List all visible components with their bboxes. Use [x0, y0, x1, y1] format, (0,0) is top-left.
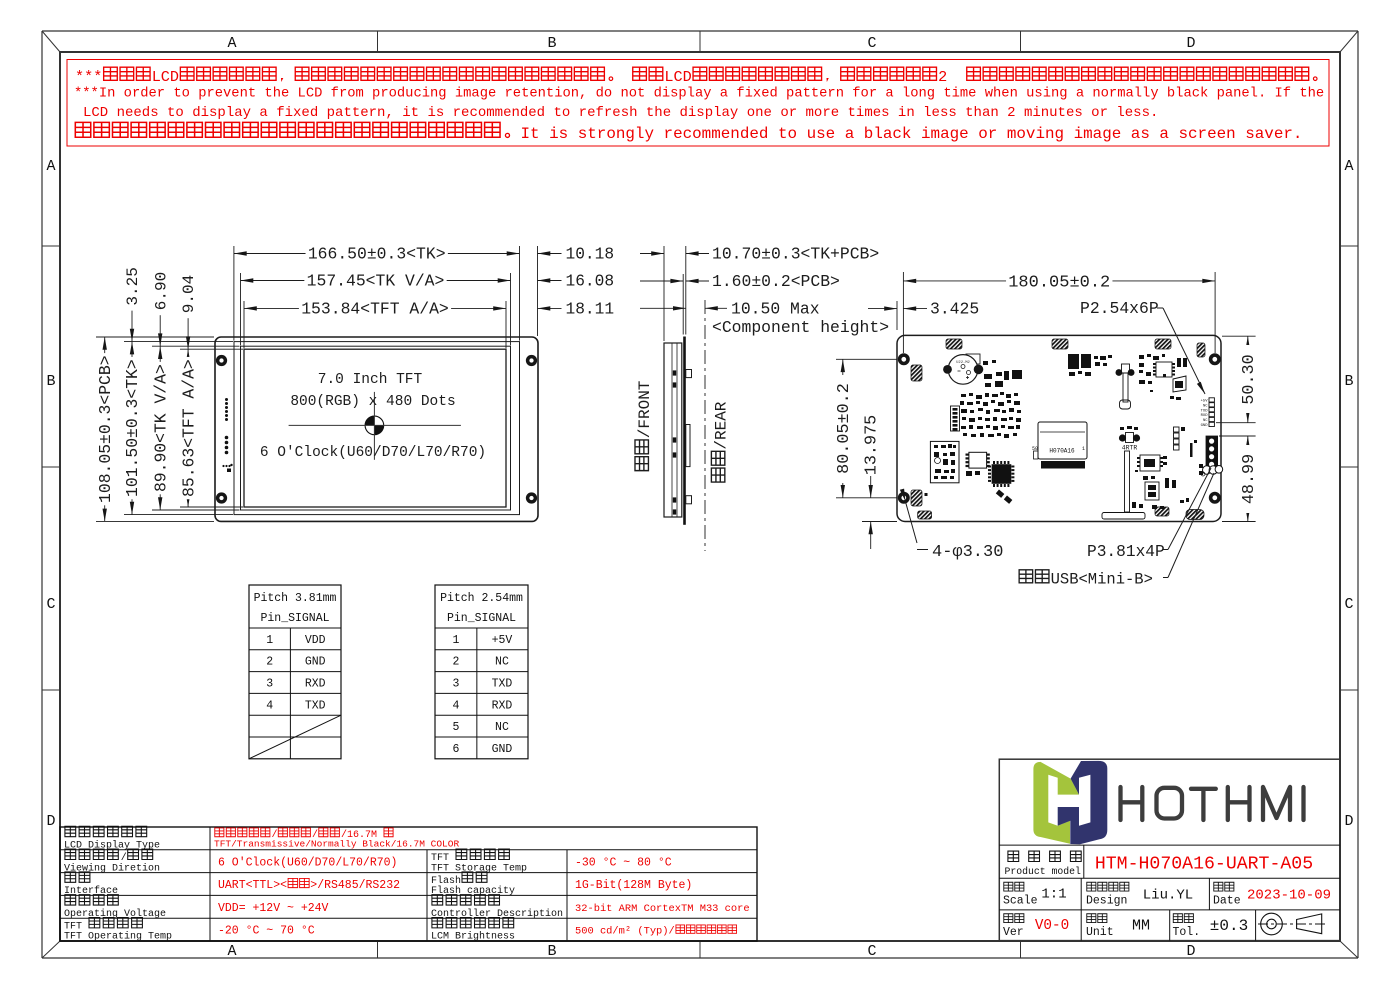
svg-text:TXD: TXD [305, 699, 326, 712]
svg-text:500 cd/m² (Typ)/: 500 cd/m² (Typ)/ [575, 926, 675, 938]
svg-text:C: C [867, 943, 876, 960]
svg-text:B: B [46, 373, 55, 390]
svg-text:A: A [227, 943, 236, 960]
svg-text:Flash capacity: Flash capacity [431, 885, 515, 897]
svg-text:H070A16: H070A16 [1049, 448, 1075, 455]
svg-text:Tol.: Tol. [1173, 926, 1201, 939]
svg-text:VDD: VDD [305, 634, 326, 647]
svg-text:Flash: Flash [431, 875, 461, 887]
svg-text:Liu.YL: Liu.YL [1143, 888, 1193, 904]
svg-text:Pitch 2.54mm: Pitch 2.54mm [440, 592, 523, 605]
svg-text:157.45<TK V/A>: 157.45<TK V/A> [307, 272, 445, 291]
svg-text:89.90<TK V/A>: 89.90<TK V/A> [151, 364, 170, 492]
svg-text:HTM-H070A16-UART-A05: HTM-H070A16-UART-A05 [1095, 855, 1313, 875]
svg-text:6 O'Clock(U60/D70/L70/R70): 6 O'Clock(U60/D70/L70/R70) [260, 445, 486, 461]
svg-text:85.63<TFT A/A>: 85.63<TFT A/A> [179, 359, 198, 497]
svg-text:Operating Voltage: Operating Voltage [64, 908, 166, 920]
svg-text:1.60±0.2<PCB>: 1.60±0.2<PCB> [712, 272, 840, 291]
svg-text:10.70±0.3<TK+PCB>: 10.70±0.3<TK+PCB> [712, 245, 879, 264]
svg-text:NC: NC [495, 656, 509, 669]
svg-text:±0.3: ±0.3 [1210, 917, 1248, 935]
svg-text:Controller Description: Controller Description [431, 908, 563, 920]
svg-text:>/RS485/RS232: >/RS485/RS232 [310, 879, 400, 892]
svg-text:B: B [547, 35, 556, 52]
svg-text:Pin_SIGNAL: Pin_SIGNAL [260, 612, 329, 625]
svg-text:***In order to prevent the LCD: ***In order to prevent the LCD from prod… [74, 86, 1324, 102]
svg-text:101.50±0.3<TK>: 101.50±0.3<TK> [123, 359, 142, 497]
svg-text:Ver: Ver [1003, 926, 1024, 939]
svg-text:5: 5 [452, 721, 459, 734]
svg-text:RXD: RXD [492, 699, 513, 712]
svg-text:Product model: Product model [1005, 866, 1082, 877]
svg-text:NC: NC [1203, 419, 1208, 423]
svg-text:4RTR: 4RTR [1122, 445, 1138, 452]
svg-text:UART<TTL><: UART<TTL>< [218, 879, 287, 892]
svg-text:2: 2 [452, 656, 459, 669]
svg-text:10.18: 10.18 [566, 246, 615, 264]
svg-text:Viewing Diretion: Viewing Diretion [64, 862, 160, 874]
svg-text:LCD: LCD [152, 68, 179, 86]
svg-text:MM: MM [1132, 918, 1150, 935]
svg-text:LCD: LCD [664, 68, 691, 86]
svg-text:10.50 Max: 10.50 Max [731, 299, 820, 318]
svg-text:TFT Operating Temp: TFT Operating Temp [64, 931, 172, 943]
svg-text:P2.54x6P: P2.54x6P [1080, 299, 1159, 318]
svg-text:1G-Bit(128M Byte): 1G-Bit(128M Byte) [575, 879, 692, 892]
svg-text:1:1: 1:1 [1041, 887, 1066, 903]
svg-text:180.05±0.2: 180.05±0.2 [1008, 273, 1110, 292]
svg-text:Scale: Scale [1003, 895, 1038, 908]
svg-text:4-φ3.30: 4-φ3.30 [932, 543, 1003, 562]
svg-text:2023-10-09: 2023-10-09 [1247, 888, 1331, 904]
svg-text:TFT Storage Temp: TFT Storage Temp [431, 863, 527, 874]
svg-text:3: 3 [452, 678, 459, 691]
svg-text:3.25: 3.25 [124, 267, 142, 305]
svg-text:Pitch 3.81mm: Pitch 3.81mm [254, 592, 337, 605]
svg-text:Unit: Unit [1086, 926, 1114, 939]
svg-text:800(RGB) x 480 Dots: 800(RGB) x 480 Dots [290, 394, 455, 410]
svg-text:80.05±0.2: 80.05±0.2 [835, 383, 854, 474]
svg-text:C: C [867, 35, 876, 52]
svg-text:RXD: RXD [305, 678, 326, 691]
svg-text:/: / [121, 852, 127, 864]
svg-text:50: 50 [1032, 446, 1038, 452]
svg-text:<Component height>: <Component height> [712, 318, 889, 337]
svg-text:A: A [1344, 158, 1353, 175]
svg-text:4: 4 [266, 699, 273, 712]
svg-text:32-bit ARM CortexTM M33 core: 32-bit ARM CortexTM M33 core [575, 903, 750, 915]
svg-text:/REAR: /REAR [713, 401, 731, 449]
svg-text:2: 2 [266, 656, 273, 669]
svg-text:B: B [547, 943, 556, 960]
svg-text:3.425: 3.425 [930, 300, 979, 319]
svg-text:9.04: 9.04 [180, 275, 198, 313]
svg-text:NC: NC [1203, 404, 1208, 408]
svg-text:1: 1 [1082, 446, 1085, 452]
svg-text:2: 2 [938, 68, 947, 86]
svg-text:1: 1 [452, 634, 459, 647]
svg-text:4: 4 [452, 699, 459, 712]
svg-text:U22-M2: U22-M2 [956, 361, 970, 365]
svg-text:D: D [46, 813, 55, 830]
svg-text:3: 3 [266, 678, 273, 691]
svg-text:16.08: 16.08 [566, 273, 615, 291]
svg-text:B: B [1344, 373, 1353, 390]
svg-text:C: C [1344, 596, 1353, 613]
svg-text:A: A [46, 158, 55, 175]
svg-text:USB<Mini-B>: USB<Mini-B> [1051, 571, 1153, 589]
svg-text:It is strongly recommended to: It is strongly recommended to use a blac… [521, 125, 1303, 143]
svg-text:+5V: +5V [1201, 400, 1209, 404]
svg-text:GND: GND [305, 656, 326, 669]
svg-text:6: 6 [452, 743, 459, 756]
svg-text:D: D [1186, 35, 1195, 52]
svg-text:***: *** [75, 68, 102, 86]
svg-text:TXD: TXD [1201, 409, 1209, 413]
svg-text:P3.81x4P: P3.81x4P [1087, 543, 1165, 561]
svg-text:166.50±0.3<TK>: 166.50±0.3<TK> [308, 245, 446, 264]
svg-text:48.99: 48.99 [1240, 454, 1259, 504]
svg-text:-20 °C ~ 70 °C: -20 °C ~ 70 °C [218, 925, 315, 938]
svg-text:Interface: Interface [64, 885, 118, 897]
svg-text:-30 °C ~ 80 °C: -30 °C ~ 80 °C [575, 856, 672, 869]
svg-text:LCD Display Type: LCD Display Type [64, 840, 160, 852]
svg-text:LCM Brightness: LCM Brightness [431, 931, 515, 943]
svg-text:6 O'Clock(U60/D70/L70/R70): 6 O'Clock(U60/D70/L70/R70) [218, 856, 397, 869]
svg-text:50.30: 50.30 [1240, 354, 1259, 404]
svg-text:GND: GND [492, 743, 513, 756]
svg-text:Design: Design [1086, 895, 1127, 908]
svg-text:C: C [46, 596, 55, 613]
svg-text:+5V: +5V [492, 634, 513, 647]
svg-text:TFT/Transmissive/Normally Blac: TFT/Transmissive/Normally Black/16.7M CO… [214, 839, 459, 850]
svg-text:Pin_SIGNAL: Pin_SIGNAL [447, 612, 516, 625]
svg-text:GND: GND [1201, 424, 1209, 428]
svg-text:Date: Date [1213, 895, 1241, 908]
svg-text:D: D [1186, 943, 1195, 960]
svg-text:TXD: TXD [492, 678, 513, 691]
svg-text:153.84<TFT A/A>: 153.84<TFT A/A> [301, 300, 449, 319]
svg-text:LCD needs to display a fixed p: LCD needs to display a fixed pattern, it… [83, 105, 1158, 121]
svg-text:V0-0: V0-0 [1035, 918, 1069, 934]
svg-text:A: A [227, 35, 236, 52]
svg-text:D: D [1344, 813, 1353, 830]
svg-text:18.11: 18.11 [566, 301, 615, 319]
svg-text:NC: NC [495, 721, 509, 734]
svg-text:/FRONT: /FRONT [636, 381, 654, 439]
svg-text:13.975: 13.975 [863, 415, 882, 475]
svg-text:1: 1 [266, 634, 273, 647]
svg-text:6.90: 6.90 [152, 272, 170, 310]
svg-text:RXD: RXD [1201, 414, 1209, 418]
svg-text:VDD= +12V ~ +24V: VDD= +12V ~ +24V [218, 902, 329, 915]
svg-text:108.05±0.3<PCB>: 108.05±0.3<PCB> [96, 355, 115, 503]
svg-text:7.0 Inch TFT: 7.0 Inch TFT [318, 372, 423, 388]
